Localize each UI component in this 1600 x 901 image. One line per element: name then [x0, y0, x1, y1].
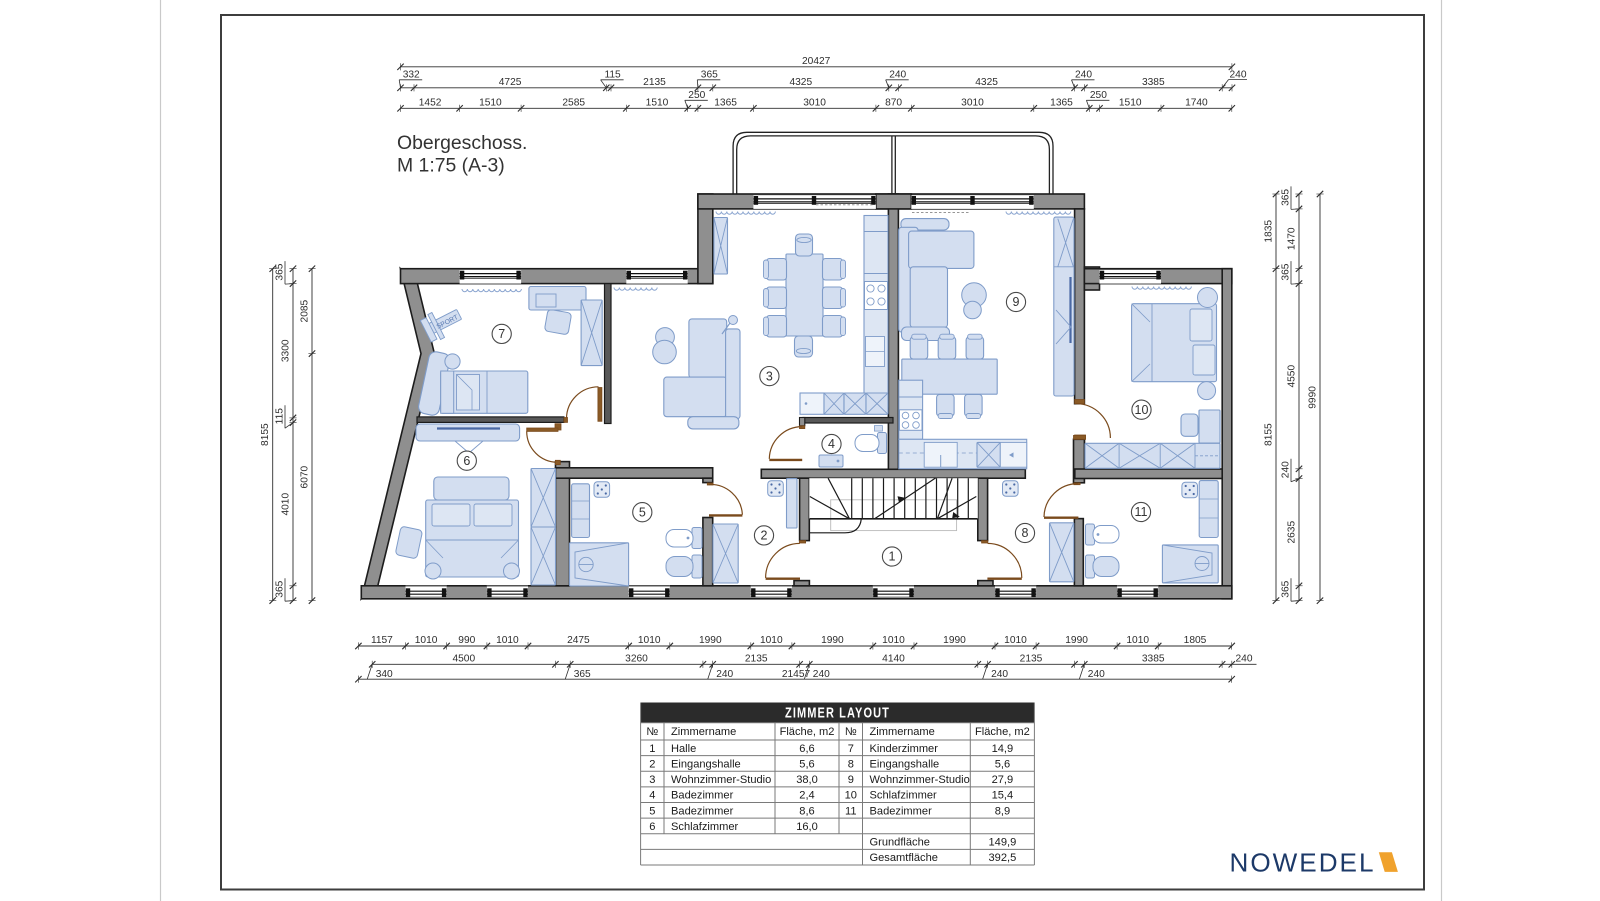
svg-text:3300: 3300	[281, 339, 292, 362]
svg-text:1010: 1010	[1126, 635, 1149, 646]
svg-text:1365: 1365	[1050, 97, 1073, 108]
svg-text:1365: 1365	[714, 97, 737, 108]
svg-text:3260: 3260	[625, 653, 648, 664]
svg-text:7: 7	[848, 743, 854, 755]
svg-text:3385: 3385	[1142, 653, 1165, 664]
svg-text:365: 365	[1281, 189, 1292, 206]
svg-text:250: 250	[688, 90, 705, 101]
svg-text:365: 365	[275, 263, 286, 280]
svg-text:7: 7	[498, 327, 505, 341]
svg-text:1990: 1990	[821, 635, 844, 646]
svg-text:240: 240	[1075, 69, 1092, 80]
svg-text:149,9: 149,9	[989, 837, 1017, 849]
svg-text:1805: 1805	[1184, 635, 1207, 646]
svg-text:1740: 1740	[1185, 97, 1208, 108]
svg-text:1510: 1510	[1119, 97, 1142, 108]
svg-text:20427: 20427	[802, 56, 831, 67]
svg-text:3: 3	[649, 774, 655, 786]
svg-text:2585: 2585	[562, 97, 585, 108]
svg-text:2: 2	[649, 759, 655, 771]
svg-text:1010: 1010	[638, 635, 661, 646]
svg-text:115: 115	[275, 408, 286, 425]
svg-text:365: 365	[275, 580, 286, 597]
svg-text:2,4: 2,4	[799, 790, 814, 802]
svg-text:14,9: 14,9	[992, 743, 1014, 755]
svg-text:6: 6	[463, 454, 470, 468]
svg-text:6070: 6070	[300, 465, 311, 488]
svg-text:Badezimmer: Badezimmer	[870, 805, 933, 817]
svg-text:1: 1	[889, 550, 896, 564]
svg-text:240: 240	[991, 669, 1008, 680]
svg-text:Fläche, m2: Fläche, m2	[780, 726, 835, 738]
svg-text:11: 11	[845, 805, 857, 817]
svg-text:1510: 1510	[479, 97, 502, 108]
svg-text:8,9: 8,9	[995, 805, 1010, 817]
svg-text:365: 365	[574, 669, 591, 680]
svg-text:1157: 1157	[371, 635, 393, 646]
svg-text:365: 365	[1281, 263, 1292, 280]
svg-text:240: 240	[813, 669, 830, 680]
svg-text:240: 240	[1088, 669, 1105, 680]
svg-text:1990: 1990	[943, 635, 966, 646]
svg-text:Zimmername: Zimmername	[671, 726, 736, 738]
svg-text:NOWEDEL: NOWEDEL	[1230, 848, 1376, 878]
svg-text:Badezimmer: Badezimmer	[671, 805, 734, 817]
svg-text:240: 240	[1230, 69, 1247, 80]
svg-text:6: 6	[649, 821, 655, 833]
svg-text:3: 3	[766, 369, 773, 383]
svg-text:2135: 2135	[745, 653, 768, 664]
svg-text:8155: 8155	[260, 423, 271, 446]
svg-text:5,6: 5,6	[995, 759, 1010, 771]
svg-text:№: №	[845, 726, 857, 738]
svg-text:5: 5	[649, 805, 655, 817]
svg-text:Grundfläche: Grundfläche	[870, 837, 930, 849]
svg-text:Kinderzimmer: Kinderzimmer	[870, 743, 939, 755]
svg-text:870: 870	[885, 97, 902, 108]
svg-text:990: 990	[458, 635, 475, 646]
svg-text:Schlafzimmer: Schlafzimmer	[870, 790, 937, 802]
svg-text:Wohnzimmer-Studio: Wohnzimmer-Studio	[671, 774, 771, 786]
svg-text:6,6: 6,6	[799, 743, 814, 755]
svg-text:Wohnzimmer-Studio: Wohnzimmer-Studio	[870, 774, 970, 786]
svg-text:4: 4	[649, 790, 655, 802]
svg-text:340: 340	[376, 669, 393, 680]
svg-text:1990: 1990	[699, 635, 722, 646]
svg-text:9: 9	[1013, 295, 1020, 309]
svg-text:4325: 4325	[975, 77, 998, 88]
svg-text:Eingangshalle: Eingangshalle	[870, 759, 940, 771]
svg-text:27,9: 27,9	[992, 774, 1014, 786]
svg-text:Obergeschoss.: Obergeschoss.	[397, 132, 527, 154]
svg-text:8: 8	[1022, 526, 1029, 540]
svg-text:Badezimmer: Badezimmer	[671, 790, 734, 802]
svg-text:2135: 2135	[643, 77, 666, 88]
svg-text:1010: 1010	[760, 635, 783, 646]
svg-text:M 1:75 (A-3): M 1:75 (A-3)	[397, 155, 505, 177]
svg-text:5,6: 5,6	[799, 759, 814, 771]
svg-text:10: 10	[1135, 403, 1149, 417]
svg-text:9990: 9990	[1308, 386, 1319, 409]
svg-text:8: 8	[848, 759, 854, 771]
svg-text:3010: 3010	[803, 97, 826, 108]
svg-text:№: №	[646, 726, 658, 738]
svg-text:365: 365	[701, 69, 718, 80]
svg-text:4550: 4550	[1287, 365, 1298, 388]
svg-text:2635: 2635	[1287, 521, 1298, 544]
svg-text:5: 5	[639, 505, 646, 519]
svg-text:8155: 8155	[1264, 423, 1275, 446]
svg-text:10: 10	[845, 790, 857, 802]
svg-text:392,5: 392,5	[989, 852, 1017, 864]
svg-text:2: 2	[761, 529, 768, 543]
svg-text:1835: 1835	[1264, 220, 1275, 243]
svg-text:1: 1	[649, 743, 655, 755]
svg-text:1010: 1010	[1004, 635, 1027, 646]
svg-text:1452: 1452	[419, 97, 442, 108]
svg-text:Fläche, m2: Fläche, m2	[975, 726, 1030, 738]
svg-text:4500: 4500	[452, 653, 475, 664]
svg-text:Eingangshalle: Eingangshalle	[671, 759, 741, 771]
svg-text:4010: 4010	[281, 493, 292, 516]
svg-text:38,0: 38,0	[796, 774, 818, 786]
svg-text:1470: 1470	[1287, 227, 1298, 250]
svg-text:4725: 4725	[499, 77, 522, 88]
svg-text:8,6: 8,6	[799, 805, 814, 817]
svg-text:4325: 4325	[789, 77, 812, 88]
svg-text:2135: 2135	[1020, 653, 1043, 664]
svg-text:15,4: 15,4	[992, 790, 1014, 802]
svg-text:1010: 1010	[496, 635, 519, 646]
svg-text:240: 240	[889, 69, 906, 80]
svg-text:21457: 21457	[782, 669, 811, 680]
svg-text:Halle: Halle	[671, 743, 696, 755]
svg-text:1990: 1990	[1065, 635, 1088, 646]
svg-text:Gesamtfläche: Gesamtfläche	[870, 852, 938, 864]
svg-text:240: 240	[716, 669, 733, 680]
svg-text:3385: 3385	[1142, 77, 1165, 88]
svg-text:1510: 1510	[646, 97, 669, 108]
svg-text:2475: 2475	[567, 635, 590, 646]
svg-text:16,0: 16,0	[796, 821, 818, 833]
svg-text:240: 240	[1281, 461, 1292, 478]
svg-text:240: 240	[1236, 653, 1253, 664]
svg-text:ZIMMER LAYOUT: ZIMMER LAYOUT	[785, 705, 890, 722]
svg-text:4: 4	[828, 437, 835, 451]
svg-text:4140: 4140	[882, 653, 905, 664]
svg-text:3010: 3010	[961, 97, 984, 108]
svg-text:Zimmername: Zimmername	[870, 726, 935, 738]
svg-text:1010: 1010	[882, 635, 905, 646]
svg-text:332: 332	[403, 69, 420, 80]
svg-text:Schlafzimmer: Schlafzimmer	[671, 821, 738, 833]
svg-text:365: 365	[1281, 580, 1292, 597]
svg-text:9: 9	[848, 774, 854, 786]
svg-text:1010: 1010	[415, 635, 438, 646]
svg-text:11: 11	[1135, 505, 1148, 519]
svg-text:2085: 2085	[300, 299, 311, 322]
svg-text:250: 250	[1090, 90, 1107, 101]
svg-text:115: 115	[604, 69, 621, 80]
